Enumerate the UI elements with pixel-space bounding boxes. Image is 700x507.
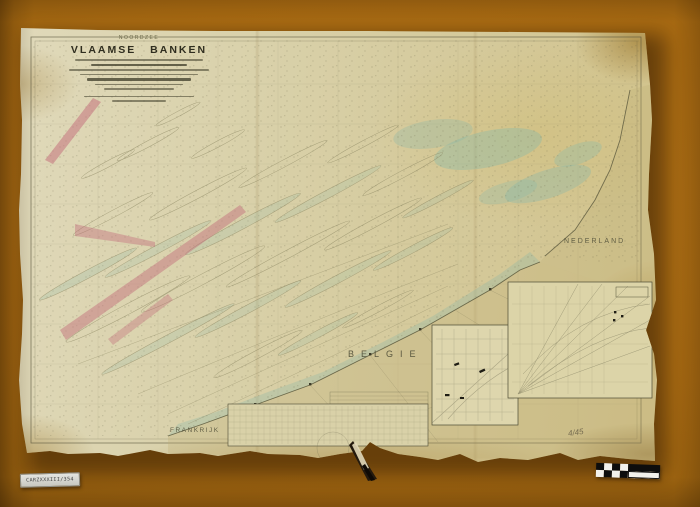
photo-scale-bar	[596, 463, 660, 479]
title-block-line	[104, 88, 174, 90]
title-block: NOORDZEE VLAAMSE BANKEN	[56, 35, 222, 102]
title-block-line	[95, 84, 183, 86]
scale-cell	[620, 471, 628, 478]
title-block-line	[80, 74, 198, 76]
title-block-line	[84, 96, 194, 98]
inset-harbour-plan	[432, 325, 518, 425]
chart-title: VLAAMSE BANKEN	[56, 44, 222, 56]
label-belgie: BELGIE	[348, 349, 423, 359]
chart-series-header: NOORDZEE	[56, 35, 222, 41]
scale-cell	[604, 470, 612, 477]
inventory-label-text: CARZXXXIII/354	[26, 476, 74, 483]
title-block-line	[91, 64, 187, 66]
title-block-line	[69, 69, 209, 71]
scale-bar-row-bottom	[596, 470, 660, 479]
label-nederland: NEDERLAND	[564, 238, 625, 245]
title-block-line	[112, 100, 166, 102]
title-block-line	[75, 59, 203, 61]
scale-cell-long	[628, 471, 660, 479]
title-block-line	[87, 78, 191, 80]
photograph-of-chart: NOORDZEE VLAAMSE BANKEN NEDERLAND BELGIE…	[0, 0, 700, 507]
inset-approach-plan	[508, 282, 652, 398]
torn-paper-flap	[345, 438, 385, 486]
inventory-label: CARZXXXIII/354	[20, 472, 80, 488]
label-frankrijk: FRANKRIJK	[170, 427, 220, 434]
scale-cell	[596, 470, 604, 477]
nautical-chart-paper: NOORDZEE VLAAMSE BANKEN NEDERLAND BELGIE…	[18, 24, 658, 464]
